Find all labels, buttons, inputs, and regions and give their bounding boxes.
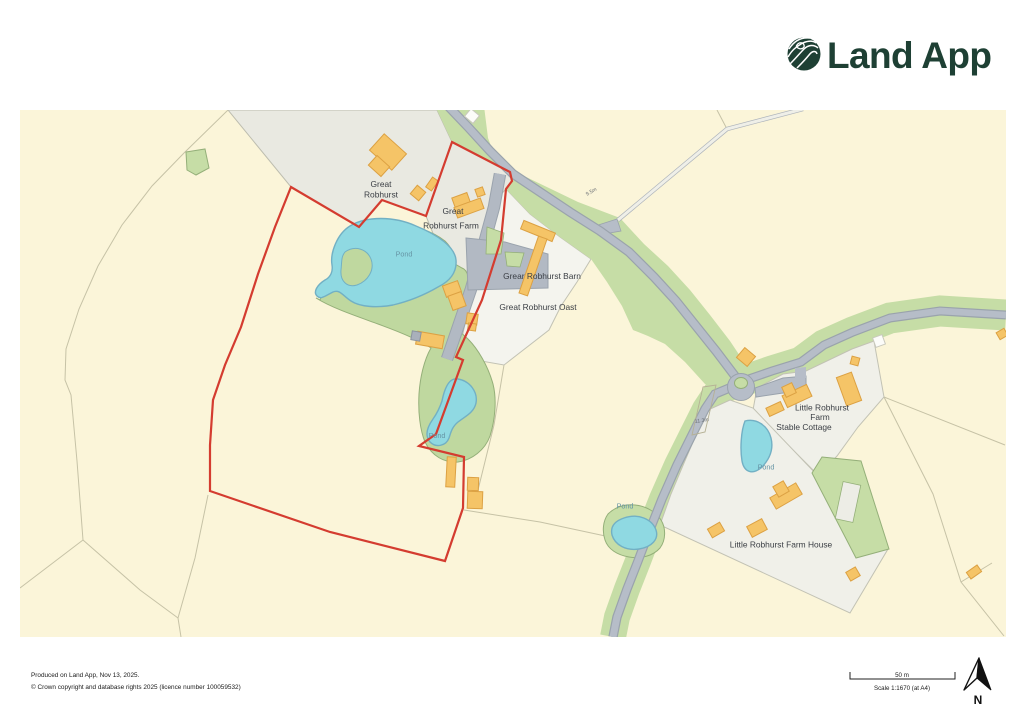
svg-text:Pond: Pond — [429, 431, 446, 440]
svg-text:Great: Great — [443, 206, 465, 216]
svg-text:Produced on Land App, Nov 13,: Produced on Land App, Nov 13, 2025. — [31, 672, 140, 679]
svg-text:Stable Cottage: Stable Cottage — [776, 422, 832, 432]
svg-text:© Crown copyright and database: © Crown copyright and database rights 20… — [31, 683, 241, 691]
svg-text:50 m: 50 m — [895, 672, 909, 679]
svg-text:Scale 1:1670 (at A4): Scale 1:1670 (at A4) — [874, 685, 930, 692]
svg-text:Pond: Pond — [396, 250, 413, 259]
svg-text:Great Robhurst Oast: Great Robhurst Oast — [499, 302, 577, 312]
svg-text:Grear Robhurst Barn: Grear Robhurst Barn — [503, 271, 581, 281]
svg-text:Robhurst Farm: Robhurst Farm — [423, 221, 479, 231]
svg-text:Little Robhurst: Little Robhurst — [795, 403, 850, 413]
svg-text:Pond: Pond — [617, 502, 634, 511]
svg-text:Great: Great — [371, 179, 393, 189]
svg-text:Robhurst: Robhurst — [364, 190, 399, 200]
svg-text:Pond: Pond — [758, 463, 775, 472]
svg-text:Little Robhurst Farm House: Little Robhurst Farm House — [730, 540, 833, 550]
svg-text:Land App: Land App — [827, 35, 991, 76]
svg-text:Farm: Farm — [810, 412, 830, 422]
svg-text:N: N — [974, 693, 983, 707]
